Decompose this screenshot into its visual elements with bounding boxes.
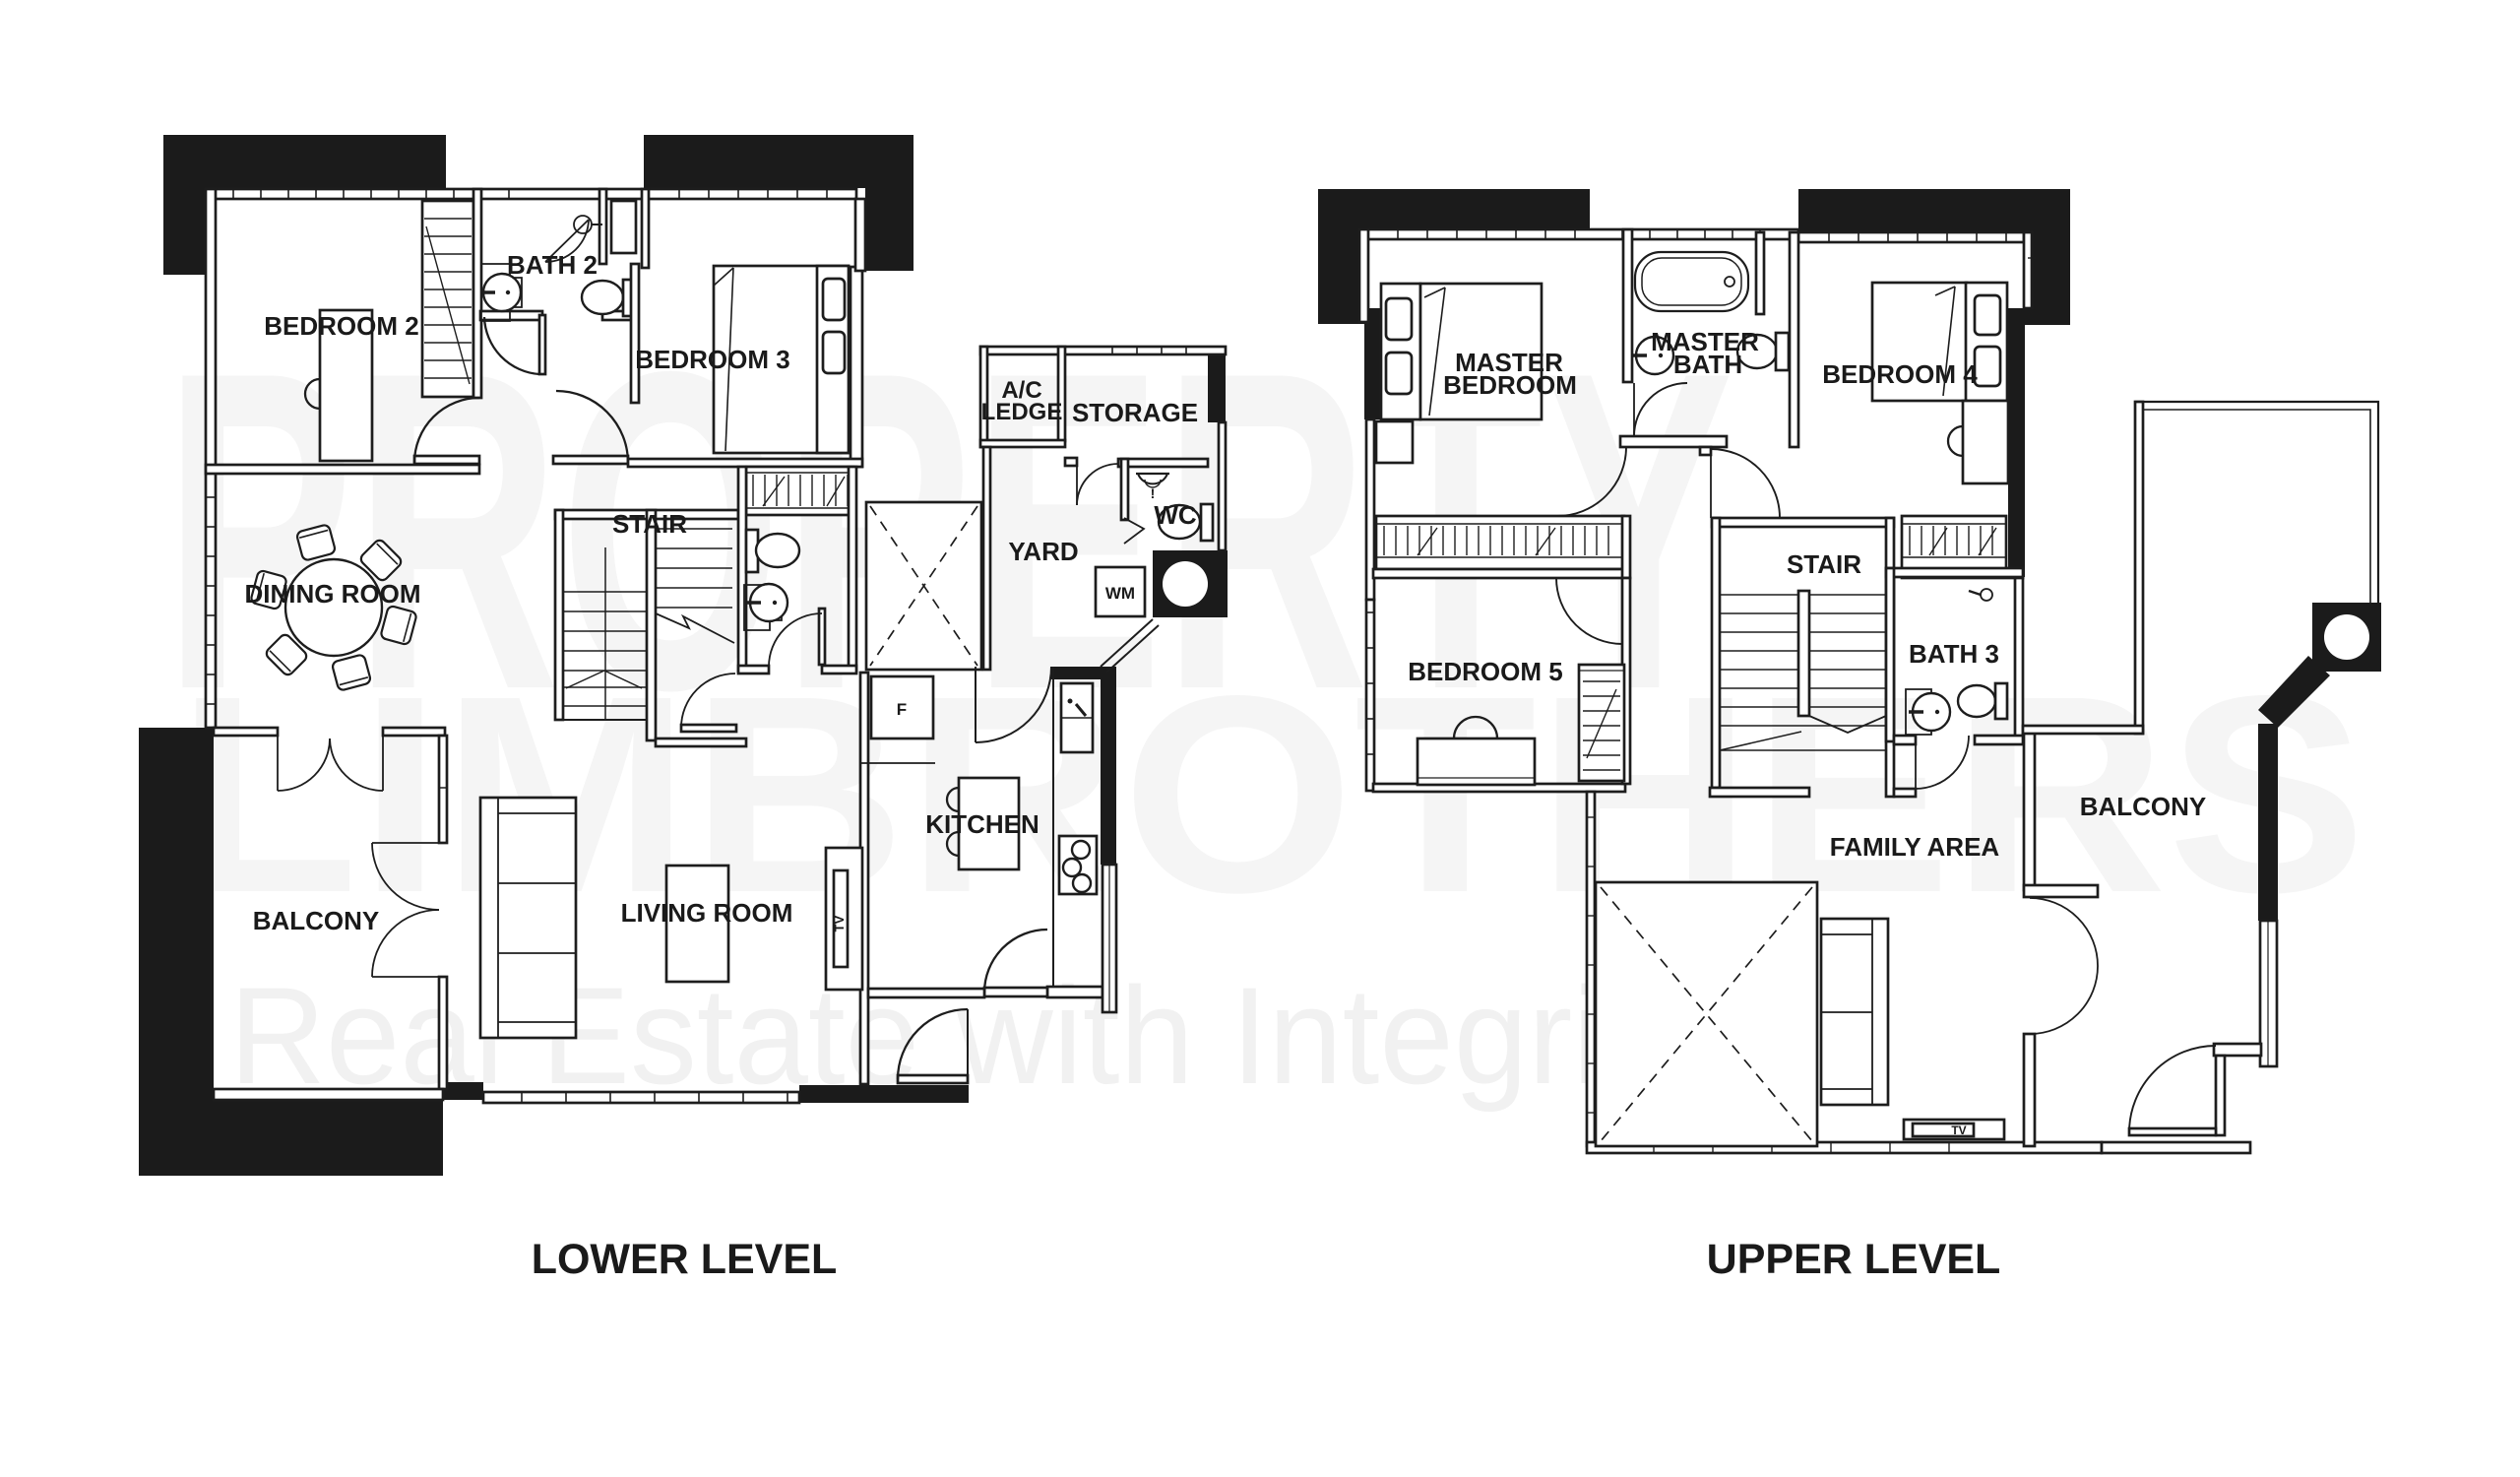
svg-text:STORAGE: STORAGE	[1072, 398, 1198, 427]
svg-text:UPPER LEVEL: UPPER LEVEL	[1707, 1236, 2001, 1283]
svg-text:WM: WM	[1105, 584, 1135, 603]
svg-text:TV: TV	[832, 915, 847, 931]
svg-text:STAIR: STAIR	[1787, 549, 1861, 579]
svg-text:BATH: BATH	[1673, 350, 1742, 379]
svg-text:STAIR: STAIR	[612, 509, 687, 539]
svg-text:BATH 2: BATH 2	[507, 250, 598, 280]
svg-text:BEDROOM 5: BEDROOM 5	[1408, 657, 1562, 686]
svg-text:!: !	[1151, 485, 1156, 501]
svg-text:YARD: YARD	[1008, 537, 1078, 566]
svg-text:BEDROOM 2: BEDROOM 2	[264, 311, 418, 341]
svg-text:LIVING ROOM: LIVING ROOM	[621, 898, 793, 928]
svg-text:BEDROOM: BEDROOM	[1443, 370, 1577, 400]
svg-text:BATH 3: BATH 3	[1909, 639, 1999, 669]
svg-text:FAMILY AREA: FAMILY AREA	[1830, 832, 2000, 862]
svg-text:BALCONY: BALCONY	[253, 906, 380, 935]
svg-text:LEDGE: LEDGE	[981, 399, 1063, 425]
svg-text:BEDROOM 4: BEDROOM 4	[1822, 359, 1978, 389]
svg-text:WC: WC	[1154, 500, 1197, 530]
svg-text:BEDROOM 3: BEDROOM 3	[635, 345, 789, 374]
svg-text:KITCHEN: KITCHEN	[925, 809, 1039, 839]
svg-text:BALCONY: BALCONY	[2080, 792, 2207, 821]
svg-text:F: F	[897, 700, 907, 719]
svg-text:DINING ROOM: DINING ROOM	[244, 579, 420, 609]
svg-text:TV: TV	[1951, 1124, 1966, 1137]
svg-text:LOWER LEVEL: LOWER LEVEL	[532, 1236, 838, 1283]
